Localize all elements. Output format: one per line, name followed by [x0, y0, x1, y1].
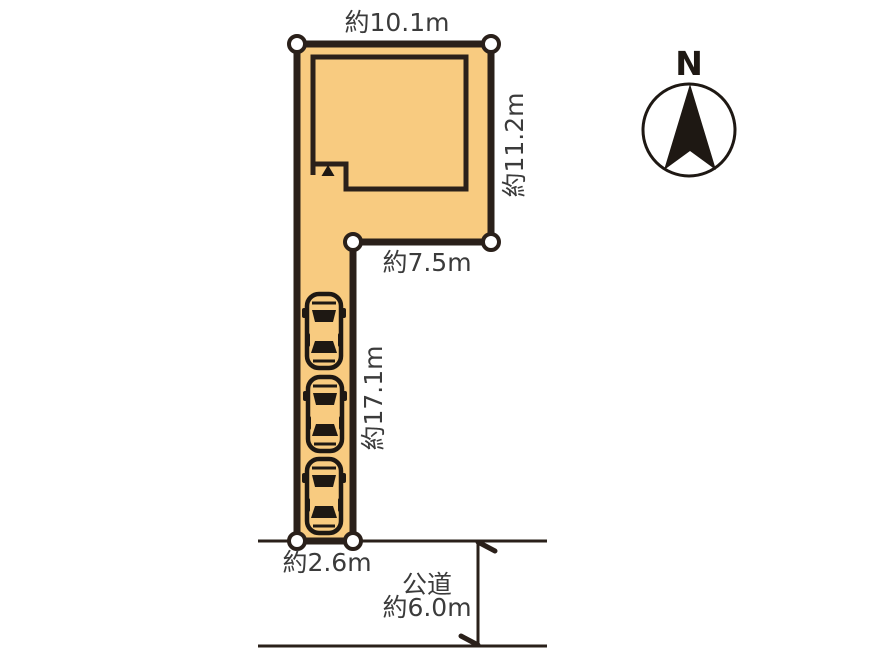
compass-north-label: N: [659, 44, 719, 83]
dim-driveway-length: 約17.1m: [360, 338, 388, 458]
compass: [643, 84, 735, 176]
corner-marker: [483, 36, 499, 52]
dim-frontage-width: 約2.6m: [257, 549, 397, 577]
road-width-label: 約6.0m: [362, 594, 492, 622]
corner-marker: [345, 234, 361, 250]
corner-marker: [289, 533, 305, 549]
site-plan-diagram: 約10.1m 約11.2m 約7.5m 約17.1m 約2.6m 公道 約6.0…: [0, 0, 889, 667]
corner-marker: [289, 36, 305, 52]
dim-top-width: 約10.1m: [297, 9, 497, 37]
corner-marker: [483, 234, 499, 250]
corner-marker: [345, 533, 361, 549]
dim-right-depth: 約11.2m: [501, 85, 529, 205]
site-plan-drawing: [0, 0, 889, 667]
dim-upper-bottom-width: 約7.5m: [352, 249, 502, 277]
